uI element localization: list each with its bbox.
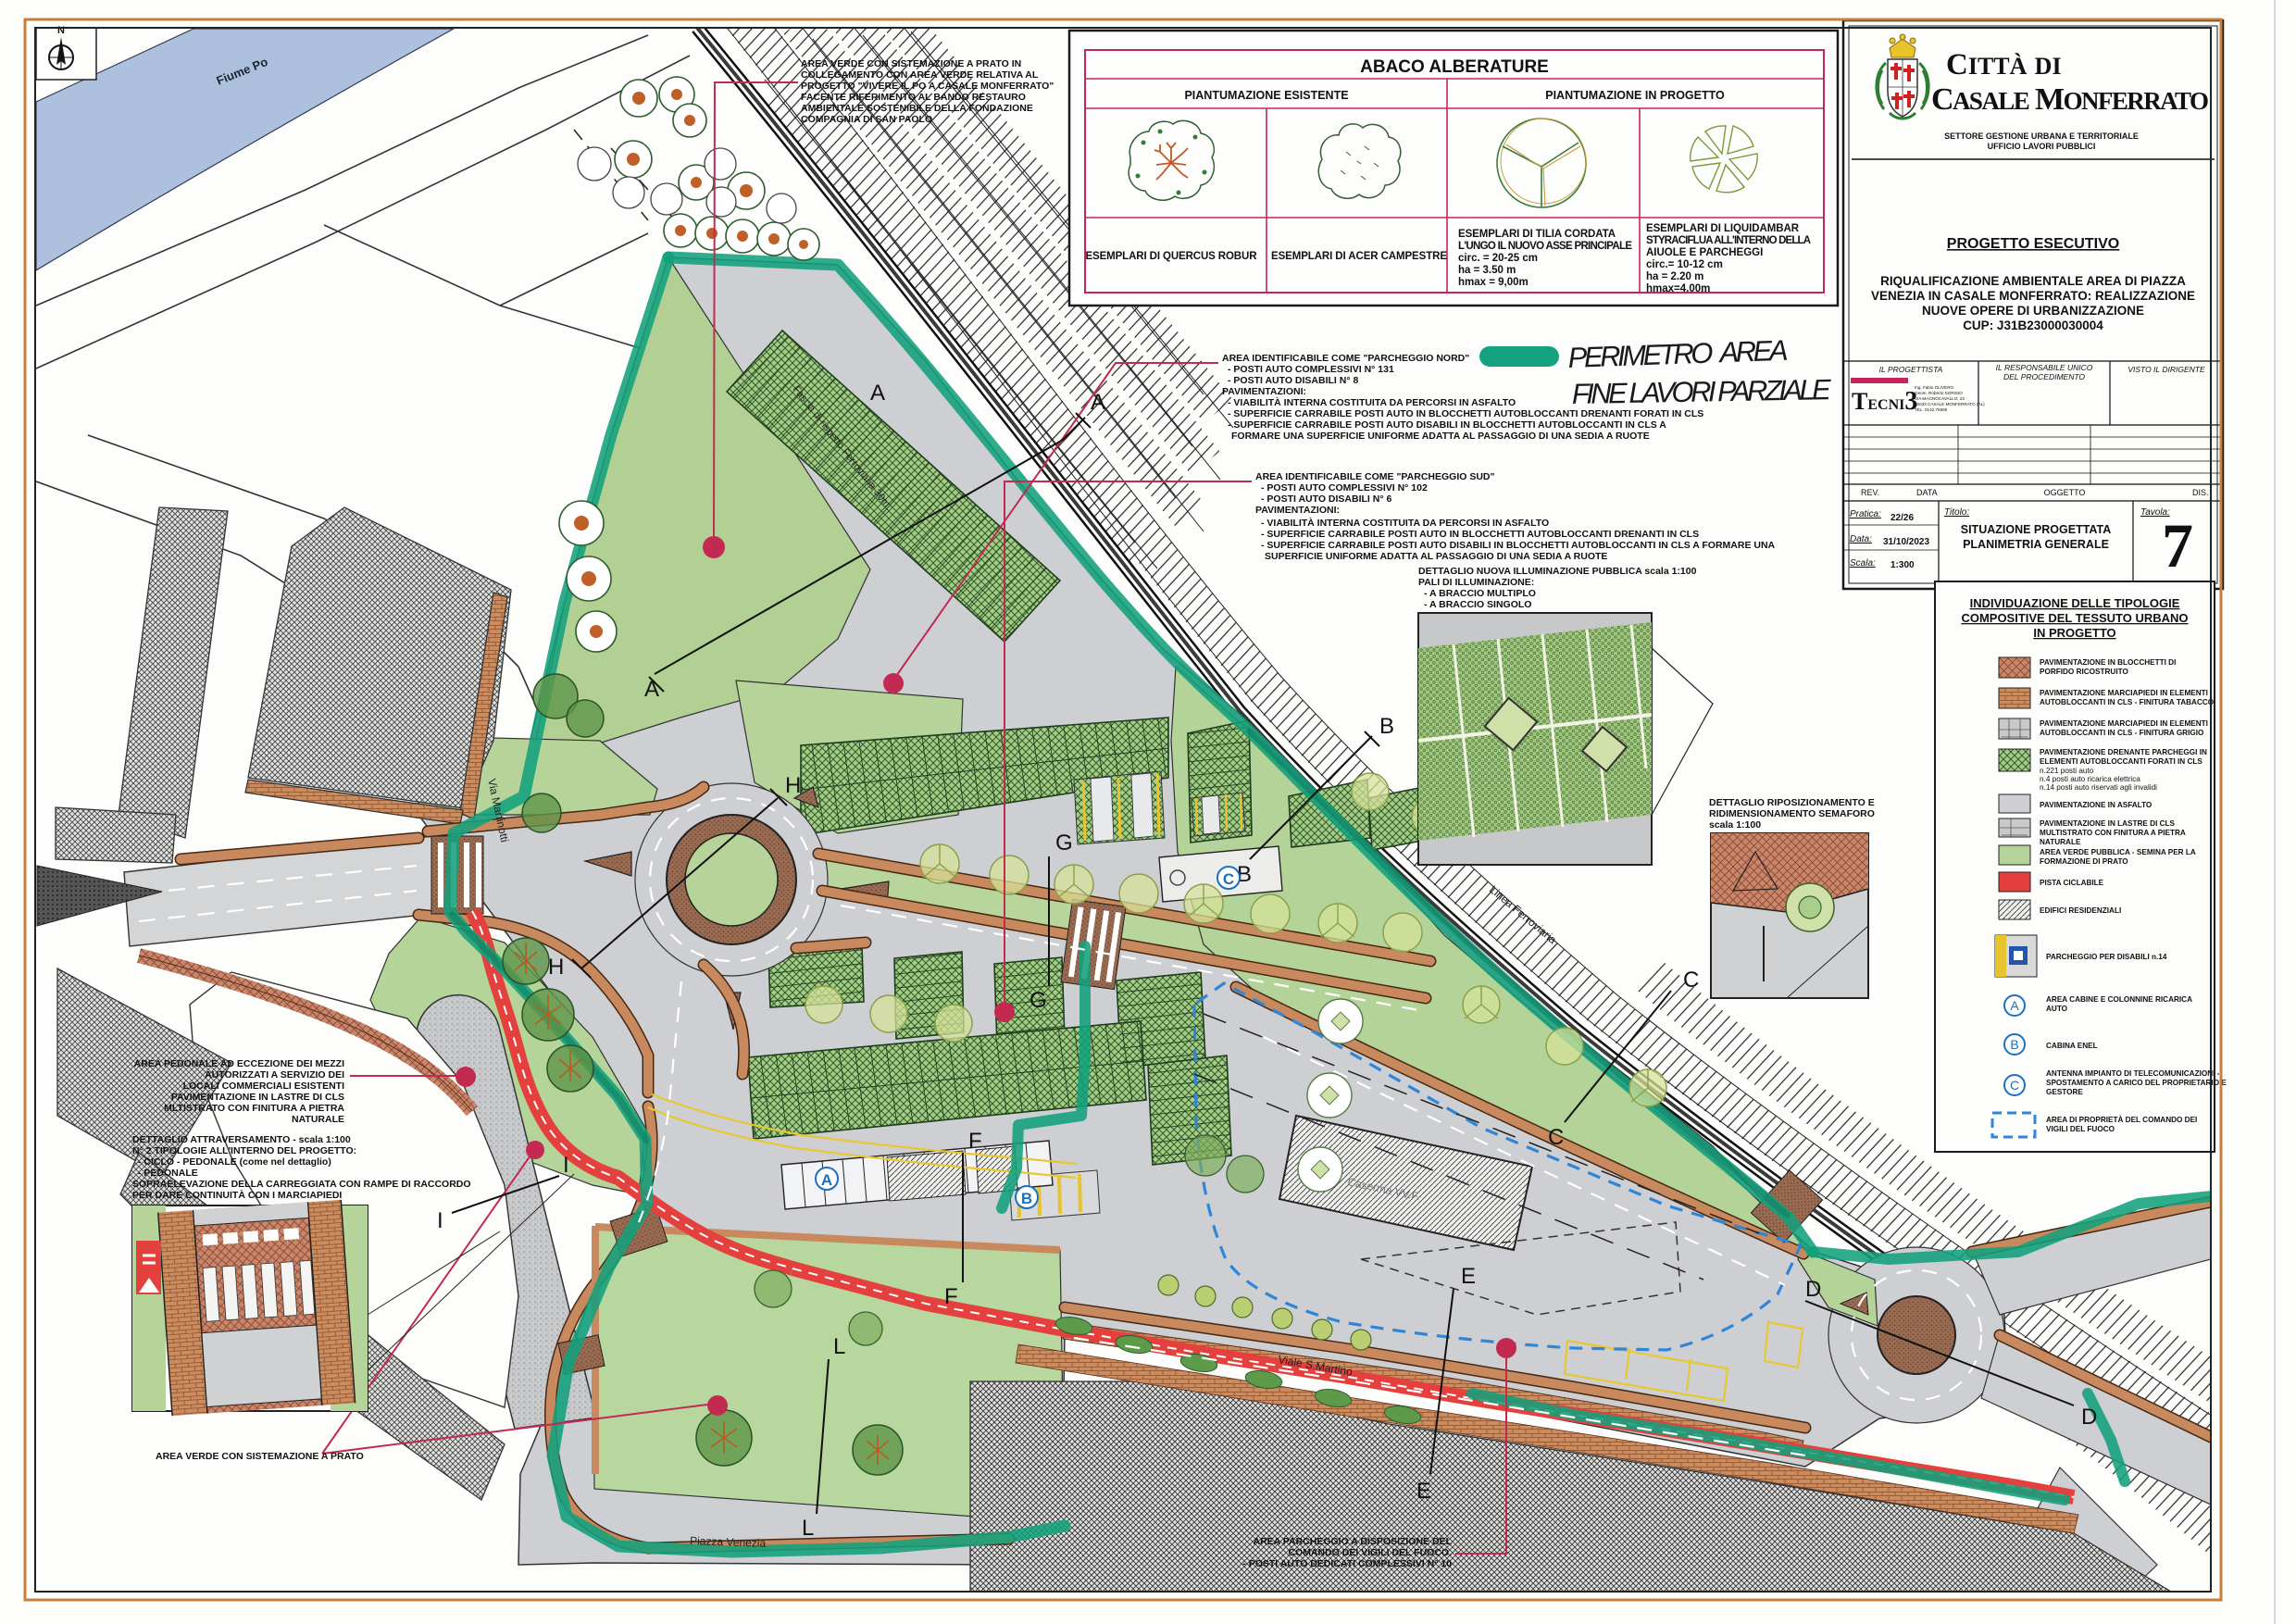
svg-text:AREA IDENTIFICABILE COME "PARC: AREA IDENTIFICABILE COME "PARCHEGGIO SUD…: [1255, 471, 1494, 482]
svg-text:AREA DI PROPRIETÀ DEL COMANDO: AREA DI PROPRIETÀ DEL COMANDO DEI: [2046, 1115, 2197, 1124]
svg-text:RIDIMENSIONAMENTO SEMAFORO: RIDIMENSIONAMENTO SEMAFORO: [1709, 808, 1875, 819]
svg-text:PORFIDO RICOSTRUITO: PORFIDO RICOSTRUITO: [2040, 668, 2128, 676]
svg-text:COLLEGAMENTO CON AREA VERDE RE: COLLEGAMENTO CON AREA VERDE RELATIVA AL: [801, 69, 1039, 81]
svg-text:B: B: [1021, 1190, 1032, 1207]
svg-text:AREA VERDE PUBBLICA - SEMINA: AREA VERDE PUBBLICA - SEMINA PER LA: [2040, 848, 2196, 856]
svg-text:ESEMPLARI DI ACER CAMPESTRE: ESEMPLARI DI ACER CAMPESTRE: [1271, 251, 1447, 262]
svg-text:A: A: [2010, 998, 2019, 1013]
svg-text:AREA PARCHEGGIO A DISPOSIZIONE: AREA PARCHEGGIO A DISPOSIZIONE DEL: [1254, 1536, 1453, 1547]
svg-text:C: C: [2010, 1078, 2019, 1093]
svg-text:L: L: [833, 1334, 845, 1359]
svg-text:AREA IDENTIFICABILE COME "PARC: AREA IDENTIFICABILE COME "PARCHEGGIO NOR…: [1222, 353, 1469, 364]
svg-text:15033 CASALE MONFERRATO (AL): 15033 CASALE MONFERRATO (AL): [1915, 402, 1985, 406]
svg-text:AREA CABINE E COLONNINE RICARI: AREA CABINE E COLONNINE RICARICA: [2046, 995, 2192, 1004]
svg-text:Ing. Fabio OLIVERO: Ing. Fabio OLIVERO: [1915, 385, 1954, 390]
svg-text:A: A: [644, 677, 659, 702]
svg-text:COMPAGNIA DI SAN PAOLO: COMPAGNIA DI SAN PAOLO: [801, 114, 932, 125]
svg-text:ESEMPLARI DI TILIA CORDATA: ESEMPLARI DI TILIA CORDATA: [1458, 229, 1616, 240]
svg-text:n.221 posti auto: n.221 posti auto: [2040, 767, 2094, 775]
svg-text:VIGILI DEL FUOCO: VIGILI DEL FUOCO: [2046, 1125, 2115, 1133]
svg-text:RIQUALIFICAZIONE AMBIENTALE AR: RIQUALIFICAZIONE AMBIENTALE AREA DI PIAZ…: [1880, 274, 2186, 288]
svg-text:A: A: [870, 381, 885, 406]
svg-text:ESEMPLARI DI LIQUIDAMBAR: ESEMPLARI DI LIQUIDAMBAR: [1646, 223, 1800, 234]
svg-text:COMPOSITIVE DEL TESSUTO URBANO: COMPOSITIVE DEL TESSUTO URBANO: [1961, 611, 2188, 625]
svg-text:circ.= 10-12 cm: circ.= 10-12 cm: [1646, 259, 1723, 270]
svg-text:FORMARE UNA SUPERFICIE UNIFOR: FORMARE UNA SUPERFICIE UNIFORME ADATTA A…: [1231, 431, 1650, 442]
svg-text:CABINA ENEL: CABINA ENEL: [2046, 1042, 2098, 1050]
svg-text:- A BRACCIO SINGOLO: - A BRACCIO SINGOLO: [1424, 599, 1531, 610]
svg-text:ELEMENTI AUTOBLOCCANTI FORATI: ELEMENTI AUTOBLOCCANTI FORATI IN CLS: [2040, 757, 2202, 766]
svg-text:IL PROGETTISTA: IL PROGETTISTA: [1879, 365, 1943, 374]
svg-text:SOPRAELEVAZIONE DELLA CARREGGI: SOPRAELEVAZIONE DELLA CARREGGIATA CON RA…: [132, 1179, 471, 1190]
svg-text:NUOVE OPERE DI URBANIZZAZIONE: NUOVE OPERE DI URBANIZZAZIONE: [1922, 304, 2144, 318]
svg-text:AREA VERDE CON SISTEMAZIONE A: AREA VERDE CON SISTEMAZIONE A PRATO: [156, 1451, 364, 1462]
svg-text:PAVIMENTAZIONI:: PAVIMENTAZIONI:: [1222, 386, 1306, 397]
svg-text:VIA MAGNOCAVALLO, 23: VIA MAGNOCAVALLO, 23: [1915, 396, 1965, 401]
svg-text:circ. = 20-25 cm: circ. = 20-25 cm: [1458, 253, 1538, 264]
svg-text:MULTISTRATO CON FINITURA A PIE: MULTISTRATO CON FINITURA A PIETRA: [2040, 829, 2186, 837]
svg-text:PAVIMENTAZIONE DRENANTE PARCHE: PAVIMENTAZIONE DRENANTE PARCHEGGI IN: [2040, 748, 2207, 756]
svg-text:- POSTI AUTO DISABILI N° 8: - POSTI AUTO DISABILI N° 8: [1228, 375, 1358, 386]
svg-text:Pratica:: Pratica:: [1850, 509, 1881, 519]
svg-text:- CICLO - PEDONALE (come nel d: - CICLO - PEDONALE (come nel dettaglio): [138, 1156, 331, 1168]
svg-text:F: F: [944, 1284, 958, 1309]
svg-text:- POSTI AUTO DEDICATI COMPLESS: - POSTI AUTO DEDICATI COMPLESSIVI N° 10: [1242, 1558, 1452, 1569]
svg-text:VISTO IL DIRIGENTE: VISTO IL DIRIGENTE: [2128, 365, 2205, 374]
svg-text:A: A: [821, 1171, 832, 1189]
svg-text:AREA VERDE CON SISTEMAZIONE A: AREA VERDE CON SISTEMAZIONE A PRATO IN: [801, 58, 1021, 69]
svg-text:Data:: Data:: [1850, 534, 1872, 544]
svg-text:- A BRACCIO MULTIPLO: - A BRACCIO MULTIPLO: [1424, 588, 1536, 599]
svg-text:D: D: [1805, 1277, 1821, 1302]
svg-text:G: G: [1029, 988, 1047, 1013]
svg-text:AUTO: AUTO: [2046, 1005, 2068, 1013]
svg-text:SPOSTAMENTO A CARICO DEL PROPR: SPOSTAMENTO A CARICO DEL PROPRIETARIO E: [2046, 1079, 2227, 1087]
svg-text:CUP: J31B23000030004: CUP: J31B23000030004: [1963, 319, 2103, 332]
svg-text:- POSTI AUTO COMPLESSIVI N° 10: - POSTI AUTO COMPLESSIVI N° 102: [1261, 482, 1428, 493]
svg-text:L'UNGO IL NUOVO ASSE PRINCIPAL: L'UNGO IL NUOVO ASSE PRINCIPALE: [1458, 241, 1632, 252]
svg-text:UFFICIO LAVORI PUBBLICI: UFFICIO LAVORI PUBBLICI: [1988, 142, 2096, 151]
svg-text:Geom. Roberto SORISIO: Geom. Roberto SORISIO: [1915, 391, 1963, 395]
svg-text:H: H: [785, 773, 801, 798]
svg-text:- POSTI AUTO COMPLESSIVI N° 13: - POSTI AUTO COMPLESSIVI N° 131: [1228, 364, 1394, 375]
svg-text:DIS.: DIS.: [2192, 488, 2209, 497]
svg-text:MLTISTRATO CON FINITURA A PIET: MLTISTRATO CON FINITURA A PIETRA: [164, 1103, 344, 1114]
svg-text:C: C: [1223, 870, 1234, 888]
svg-text:PAVIMENTAZIONI:: PAVIMENTAZIONI:: [1255, 505, 1340, 516]
svg-text:COMANDO DEI VIGILI DEL FUOCO.: COMANDO DEI VIGILI DEL FUOCO.: [1288, 1547, 1452, 1558]
svg-text:CASALE MONFERRATO: CASALE MONFERRATO: [1931, 82, 2209, 117]
svg-text:PAVIMENTAZIONE IN LASTRE DI C: PAVIMENTAZIONE IN LASTRE DI CLS: [171, 1092, 344, 1103]
svg-text:PIANTUMAZIONE IN PROGETTO: PIANTUMAZIONE IN PROGETTO: [1545, 89, 1725, 102]
svg-text:PLANIMETRIA GENERALE: PLANIMETRIA GENERALE: [1963, 538, 2109, 551]
svg-text:NATURALE: NATURALE: [2040, 838, 2081, 846]
svg-text:D: D: [2081, 1405, 2097, 1430]
svg-text:hmax = 9,00m: hmax = 9,00m: [1458, 277, 1529, 288]
svg-text:- PEDONALE: - PEDONALE: [138, 1168, 198, 1179]
svg-text:- POSTI AUTO DISABILI N° 6: - POSTI AUTO DISABILI N° 6: [1261, 493, 1391, 505]
svg-text:7: 7: [2162, 510, 2193, 581]
svg-text:PARCHEGGIO PER DISABILI n.14: PARCHEGGIO PER DISABILI n.14: [2046, 953, 2167, 961]
svg-text:PAVIMENTAZIONE MARCIAPIEDI IN: PAVIMENTAZIONE MARCIAPIEDI IN ELEMENTI: [2040, 719, 2208, 728]
svg-text:TEL. 0142.76590: TEL. 0142.76590: [1915, 407, 1948, 412]
svg-text:PROGETTO ESECUTIVO: PROGETTO ESECUTIVO: [1947, 236, 2119, 252]
svg-text:IL RESPONSABILE UNICO: IL RESPONSABILE UNICO: [1996, 363, 2093, 372]
svg-text:GESTORE: GESTORE: [2046, 1088, 2083, 1096]
svg-text:22/26: 22/26: [1890, 513, 1914, 523]
svg-text:PIANTUMAZIONE ESISTENTE: PIANTUMAZIONE ESISTENTE: [1184, 89, 1348, 102]
svg-text:CITTÀ DI: CITTÀ DI: [1946, 48, 2062, 81]
svg-text:PISTA CICLABILE: PISTA CICLABILE: [2040, 879, 2104, 887]
svg-text:DETTAGLIO NUOVA ILLUMINAZIONE: DETTAGLIO NUOVA ILLUMINAZIONE PUBBLICA s…: [1418, 566, 1697, 577]
svg-text:ha = 2.20 m: ha = 2.20 m: [1646, 271, 1703, 282]
svg-text:E: E: [1416, 1479, 1431, 1504]
svg-text:n.14 posti auto riservati agli: n.14 posti auto riservati agli invalidi: [2040, 783, 2157, 792]
svg-text:SETTORE GESTIONE URBANA E TERR: SETTORE GESTIONE URBANA E TERRITORIALE: [1944, 131, 2139, 141]
svg-text:C: C: [1548, 1125, 1564, 1150]
svg-text:H: H: [548, 955, 564, 980]
svg-text:n.4 posti auto ricarica elettr: n.4 posti auto ricarica elettrica: [2040, 775, 2140, 783]
svg-text:ANTENNA IMPIANTO DI TELECOMUNI: ANTENNA IMPIANTO DI TELECOMUNICAZIONI -: [2046, 1069, 2220, 1078]
svg-text:DATA: DATA: [1916, 488, 1938, 497]
svg-text:PROGETTO "VIVERE IL PO A CASAL: PROGETTO "VIVERE IL PO A CASALE MONFERRA…: [801, 81, 1054, 92]
svg-text:AMBIENTALE SOSTENIBILE DELLA F: AMBIENTALE SOSTENIBILE DELLA FONDAZIONE: [801, 103, 1033, 114]
svg-text:PAVIMENTAZIONE MARCIAPIEDI IN: PAVIMENTAZIONE MARCIAPIEDI IN ELEMENTI: [2040, 689, 2208, 697]
svg-text:PAVIMENTAZIONE IN ASFALTO: PAVIMENTAZIONE IN ASFALTO: [2040, 801, 2152, 809]
svg-text:Piazza Venezia: Piazza Venezia: [690, 1534, 767, 1550]
svg-text:- SUPERFICIE CARRABILE POSTI A: - SUPERFICIE CARRABILE POSTI AUTO DISABI…: [1228, 419, 1666, 431]
svg-text:PAVIMENTAZIONE IN LASTRE DI: PAVIMENTAZIONE IN LASTRE DI CLS: [2040, 819, 2176, 828]
svg-text:Scala:: Scala:: [1850, 558, 1876, 568]
svg-text:STYRACIFLUA ALL'INTERNO DELLA: STYRACIFLUA ALL'INTERNO DELLA: [1646, 235, 1811, 246]
svg-text:FINE LAVORI PARZIALE: FINE LAVORI PARZIALE: [1572, 373, 1832, 410]
svg-text:31/10/2023: 31/10/2023: [1883, 537, 1929, 547]
svg-text:B: B: [2010, 1037, 2018, 1052]
svg-text:IN PROGETTO: IN PROGETTO: [2033, 626, 2115, 640]
svg-text:Titolo:: Titolo:: [1944, 507, 1969, 518]
svg-text:ABACO ALBERATURE: ABACO ALBERATURE: [1360, 57, 1549, 77]
svg-text:G: G: [1055, 831, 1073, 856]
svg-text:EDIFICI RESIDENZIALI: EDIFICI RESIDENZIALI: [2040, 906, 2121, 915]
svg-text:LOCALI COMMERCIALI ESISTENTI: LOCALI COMMERCIALI ESISTENTI: [183, 1081, 344, 1092]
svg-text:ESEMPLARI DI QUERCUS ROBUR: ESEMPLARI DI QUERCUS ROBUR: [1086, 251, 1258, 262]
svg-text:C: C: [1683, 968, 1699, 993]
svg-text:INDIVIDUAZIONE DELLE TIPOLOGIE: INDIVIDUAZIONE DELLE TIPOLOGIE: [1970, 596, 2180, 610]
svg-text:E: E: [1461, 1264, 1476, 1289]
svg-text:VENEZIA IN CASALE MONFERRATO:: VENEZIA IN CASALE MONFERRATO: REALIZZAZI…: [1871, 289, 2195, 303]
svg-text:scala 1:100: scala 1:100: [1709, 819, 1761, 831]
svg-text:PAVIMENTAZIONE IN BLOCCHETTI D: PAVIMENTAZIONE IN BLOCCHETTI DI: [2040, 658, 2176, 667]
svg-text:- VIABILITÀ INTERNA COSTITUITA: - VIABILITÀ INTERNA COSTITUITA DA PERCOR…: [1261, 517, 1549, 529]
svg-text:AREA PEDONALE AD ECCEZIONE DEI: AREA PEDONALE AD ECCEZIONE DEI MEZZI: [134, 1058, 344, 1069]
svg-text:REV.: REV.: [1861, 488, 1879, 497]
svg-text:FACENTE RIFERIMENTO AL BANDO R: FACENTE RIFERIMENTO AL BANDO RESTAURO: [801, 92, 1026, 103]
svg-text:AUTORIZZATI A SERVIZIO DEI: AUTORIZZATI A SERVIZIO DEI: [205, 1069, 344, 1081]
svg-text:I: I: [437, 1208, 443, 1233]
svg-text:PER DARE CONTINUITÀ CON I MARC: PER DARE CONTINUITÀ CON I MARCIAPIEDI: [132, 1189, 342, 1201]
svg-text:FORMAZIONE DI PRATO: FORMAZIONE DI PRATO: [2040, 857, 2128, 866]
svg-text:AIUOLE E PARCHEGGI: AIUOLE E PARCHEGGI: [1646, 247, 1763, 258]
svg-text:1:300: 1:300: [1890, 560, 1915, 570]
svg-text:DEL PROCEDIMENTO: DEL PROCEDIMENTO: [2003, 372, 2085, 381]
svg-text:A: A: [1091, 390, 1105, 415]
svg-text:PALI DI ILLUMINAZIONE:: PALI DI ILLUMINAZIONE:: [1418, 577, 1534, 588]
svg-text:N° 2 TIPOLOGIE ALL'INTERNO DEL: N° 2 TIPOLOGIE ALL'INTERNO DEL PROGETTO:: [132, 1145, 356, 1156]
svg-text:- SUPERFICIE CARRABILE POSTI A: - SUPERFICIE CARRABILE POSTI AUTO IN BLO…: [1261, 529, 1699, 540]
svg-text:B: B: [1379, 714, 1394, 739]
svg-text:ha = 3.50 m: ha = 3.50 m: [1458, 265, 1516, 276]
svg-text:I: I: [563, 1153, 569, 1178]
svg-text:- SUPERFICIE CARRABILE POSTI A: - SUPERFICIE CARRABILE POSTI AUTO DISABI…: [1261, 540, 1776, 551]
svg-text:- VIABILITÀ INTERNA COSTITUITA: - VIABILITÀ INTERNA COSTITUITA DA PERCOR…: [1228, 396, 1516, 408]
svg-text:SITUAZIONE PROGETTATA: SITUAZIONE PROGETTATA: [1961, 523, 2112, 536]
svg-text:hmax=4.00m: hmax=4.00m: [1646, 283, 1710, 294]
svg-text:OGGETTO: OGGETTO: [2044, 488, 2086, 497]
svg-text:- SUPERFICIE CARRABILE POSTI A: - SUPERFICIE CARRABILE POSTI AUTO IN BLO…: [1228, 408, 1703, 419]
svg-text:SUPERFICIE UNIFORME ADATTA AL: SUPERFICIE UNIFORME ADATTA AL PASSAGGIO …: [1265, 551, 1607, 562]
svg-text:AUTOBLOCCANTI IN CLS - FINITUR: AUTOBLOCCANTI IN CLS - FINITURA TABACCO: [2040, 698, 2215, 706]
svg-text:AUTOBLOCCANTI IN CLS - FINITUR: AUTOBLOCCANTI IN CLS - FINITURA GRIGIO: [2040, 729, 2204, 737]
svg-text:DETTAGLIO RIPOSIZIONAMENTO E: DETTAGLIO RIPOSIZIONAMENTO E: [1709, 797, 1875, 808]
svg-text:F: F: [968, 1129, 982, 1154]
svg-text:NATURALE: NATURALE: [292, 1114, 344, 1125]
svg-text:N: N: [57, 25, 65, 36]
svg-text:L: L: [802, 1516, 814, 1541]
svg-text:DETTAGLIO ATTRAVERSAMENTO - sc: DETTAGLIO ATTRAVERSAMENTO - scala 1:100: [132, 1134, 351, 1145]
